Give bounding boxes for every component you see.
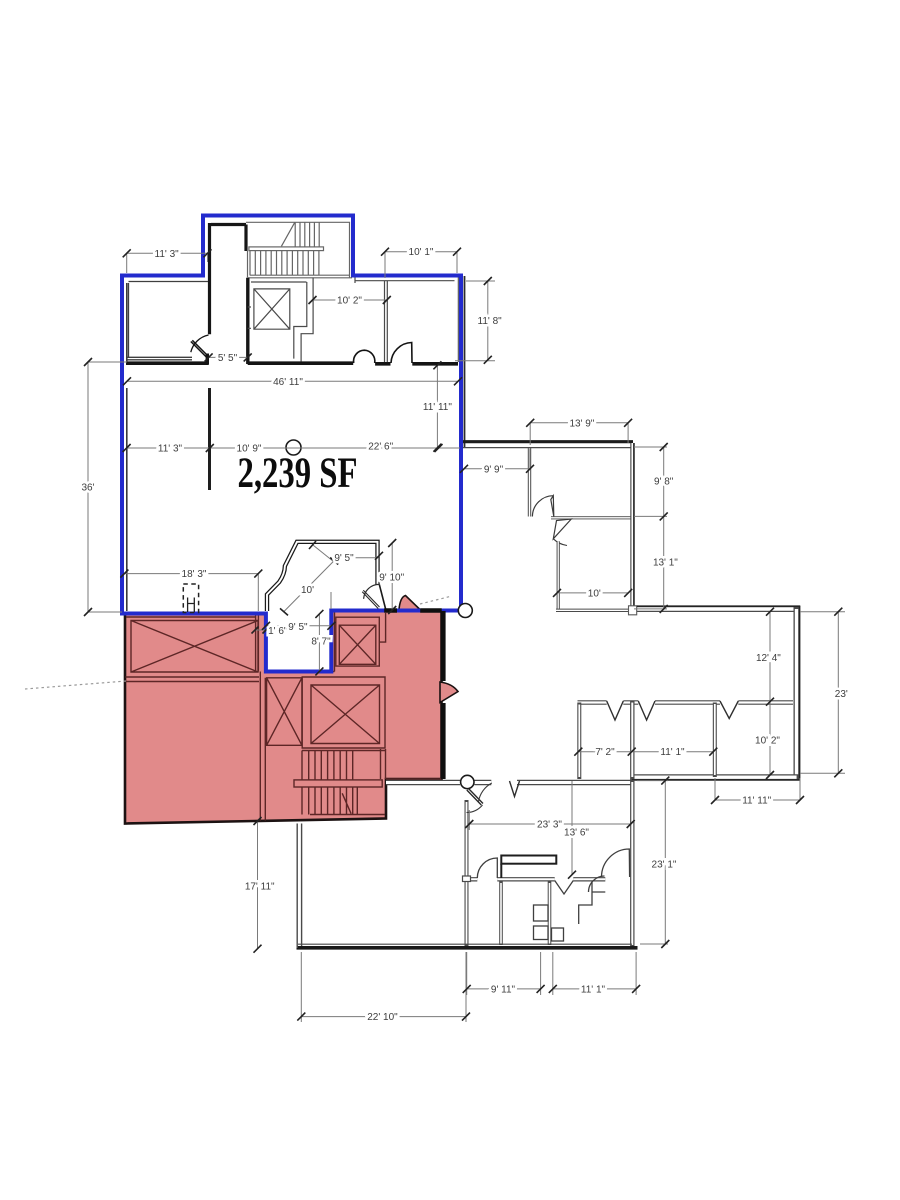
svg-text:9' 9": 9' 9"	[484, 464, 504, 475]
svg-text:9' 11": 9' 11"	[491, 984, 516, 995]
svg-text:5' 5": 5' 5"	[218, 353, 238, 364]
svg-text:23' 3": 23' 3"	[537, 820, 562, 831]
svg-text:22' 10": 22' 10"	[367, 1012, 398, 1023]
svg-text:9' 8": 9' 8"	[654, 476, 674, 487]
svg-text:10': 10'	[588, 588, 601, 599]
svg-text:17' 11": 17' 11"	[245, 882, 275, 893]
svg-text:7' 2": 7' 2"	[595, 747, 615, 758]
svg-text:13' 9": 13' 9"	[569, 418, 594, 429]
svg-text:9' 5": 9' 5"	[334, 553, 354, 564]
svg-text:10' 2": 10' 2"	[337, 296, 362, 307]
svg-text:9' 10": 9' 10"	[379, 573, 404, 584]
svg-text:36': 36'	[81, 483, 94, 494]
svg-text:11' 8": 11' 8"	[478, 316, 503, 327]
svg-text:11' 3": 11' 3"	[158, 444, 183, 455]
svg-text:13' 1": 13' 1"	[653, 558, 678, 569]
svg-text:23': 23'	[835, 689, 848, 700]
svg-text:22' 6": 22' 6"	[368, 442, 393, 453]
svg-text:11' 1": 11' 1"	[581, 984, 606, 995]
svg-text:1' 6": 1' 6"	[268, 626, 288, 637]
svg-text:10' 1": 10' 1"	[409, 247, 434, 258]
svg-text:13' 6": 13' 6"	[564, 828, 589, 839]
svg-text:9' 5": 9' 5"	[288, 622, 308, 633]
svg-text:46' 11": 46' 11"	[273, 377, 303, 388]
svg-text:18' 3": 18' 3"	[182, 569, 207, 580]
svg-text:11' 3": 11' 3"	[155, 249, 180, 260]
svg-text:2,239 SF: 2,239 SF	[238, 450, 358, 497]
svg-text:11' 11": 11' 11"	[423, 402, 452, 413]
svg-text:11' 1": 11' 1"	[660, 747, 685, 758]
svg-text:10': 10'	[301, 585, 314, 596]
svg-text:23' 1": 23' 1"	[652, 860, 677, 871]
svg-text:12' 4": 12' 4"	[756, 653, 781, 664]
svg-text:10' 2": 10' 2"	[755, 736, 780, 747]
svg-text:11' 11": 11' 11"	[742, 796, 771, 807]
svg-text:8' 7": 8' 7"	[311, 636, 331, 647]
